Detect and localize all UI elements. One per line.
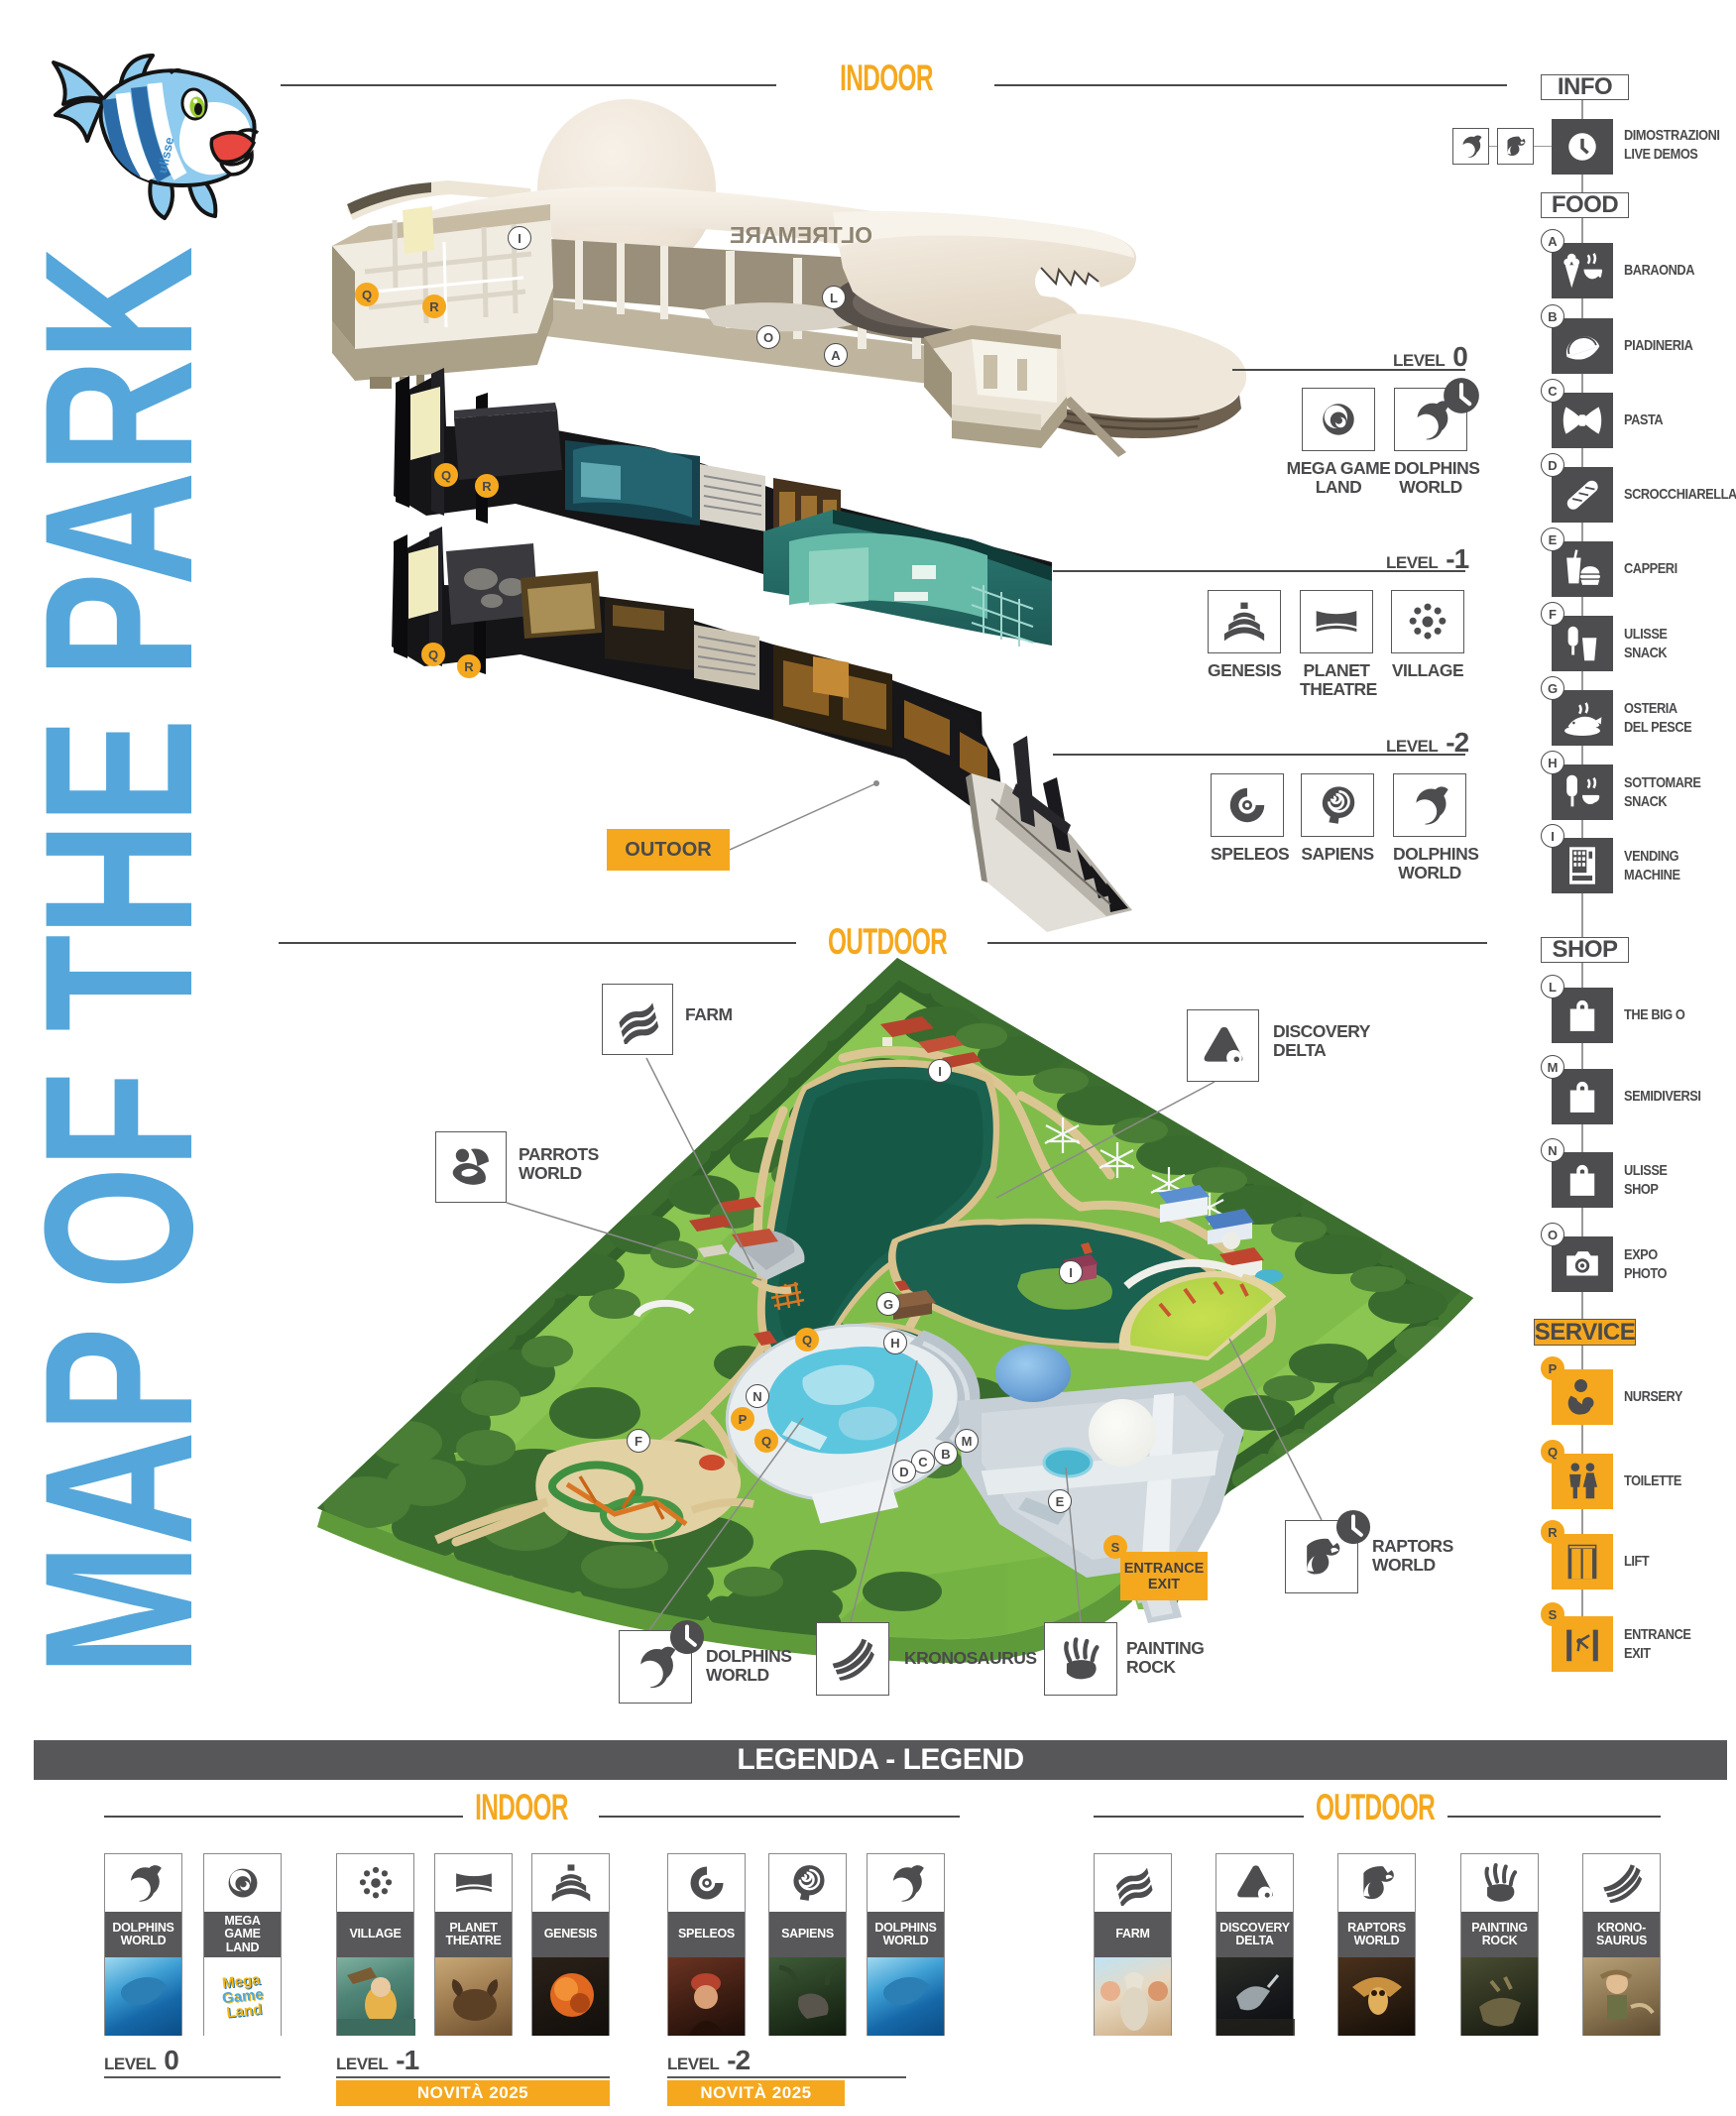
svg-text:OLTREMARE: OLTREMARE [730, 222, 872, 248]
svg-text:MAP OF THE PARK: MAP OF THE PARK [1, 247, 218, 1676]
